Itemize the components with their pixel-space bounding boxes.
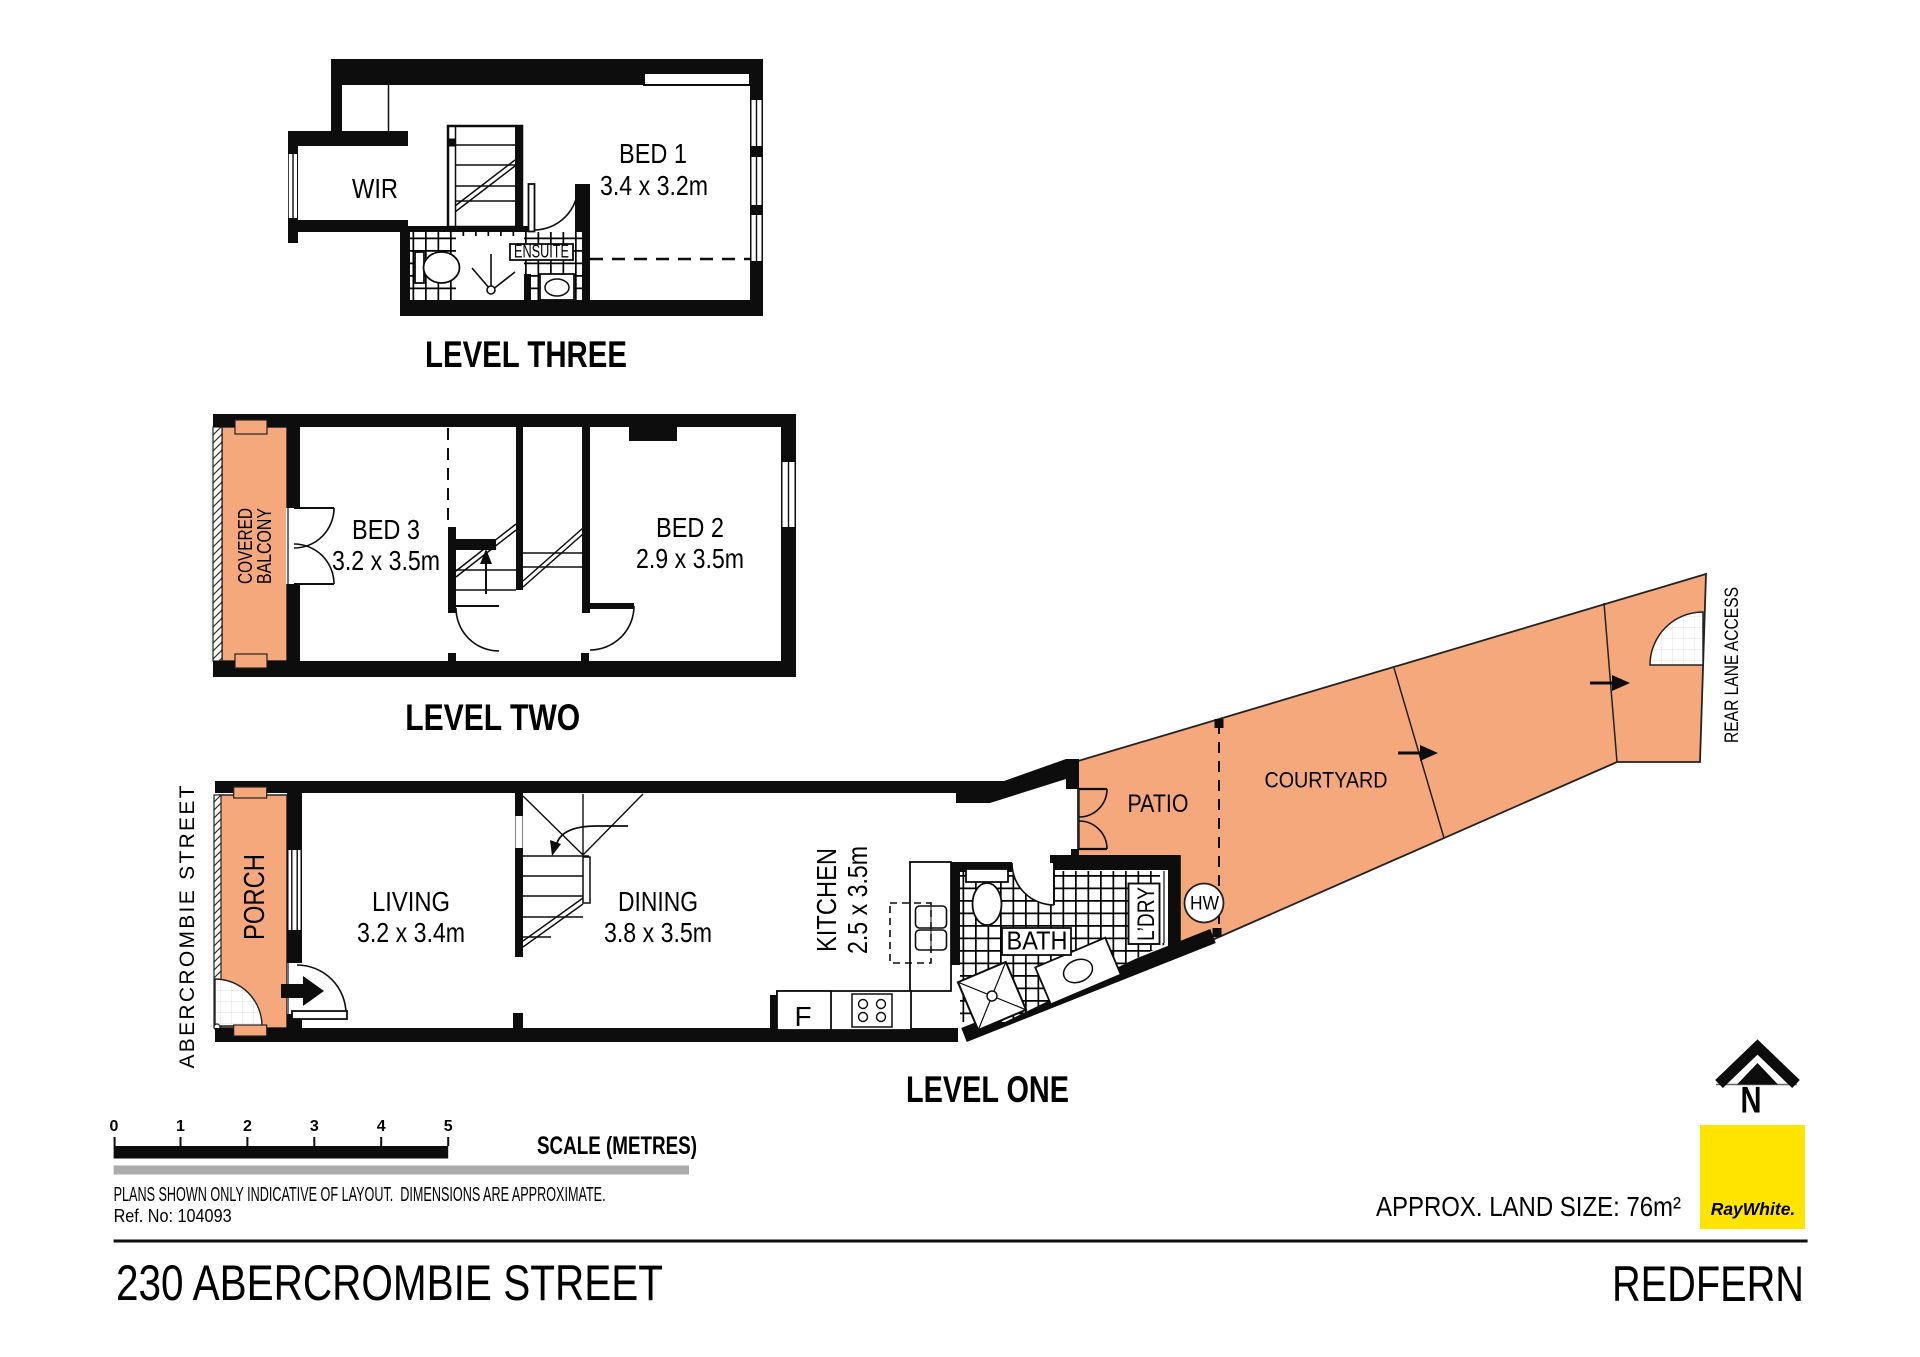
svg-text:PATIO: PATIO <box>1128 790 1189 818</box>
svg-text:RayWhite.: RayWhite. <box>1711 1199 1796 1219</box>
svg-text:230 ABERCROMBIE STREET: 230 ABERCROMBIE STREET <box>116 1255 663 1311</box>
svg-text:DINING: DINING <box>618 886 698 917</box>
svg-text:LEVEL ONE: LEVEL ONE <box>906 1069 1069 1110</box>
svg-text:BED 3: BED 3 <box>352 514 420 545</box>
svg-text:Ref. No: 104093: Ref. No: 104093 <box>114 1206 232 1226</box>
svg-text:5: 5 <box>444 1118 453 1135</box>
svg-text:BED 2: BED 2 <box>656 512 724 543</box>
svg-text:F: F <box>794 1001 811 1032</box>
svg-text:BATH: BATH <box>1007 926 1068 956</box>
svg-text:4: 4 <box>377 1118 386 1135</box>
svg-text:APPROX. LAND SIZE: 76m²: APPROX. LAND SIZE: 76m² <box>1376 1191 1681 1222</box>
svg-text:REDFERN: REDFERN <box>1612 1256 1804 1312</box>
svg-text:2.5 x 3.5m: 2.5 x 3.5m <box>842 846 873 954</box>
svg-text:2.9 x 3.5m: 2.9 x 3.5m <box>636 543 744 574</box>
svg-text:3.8 x 3.5m: 3.8 x 3.5m <box>604 917 712 948</box>
svg-text:LEVEL TWO: LEVEL TWO <box>405 697 580 738</box>
svg-text:3.2 x 3.4m: 3.2 x 3.4m <box>357 917 465 948</box>
svg-text:KITCHEN: KITCHEN <box>811 848 842 952</box>
svg-text:ENSUITE: ENSUITE <box>514 242 569 262</box>
svg-text:3.2 x 3.5m: 3.2 x 3.5m <box>332 545 440 576</box>
svg-text:WIR: WIR <box>352 173 398 204</box>
svg-text:3: 3 <box>310 1118 319 1135</box>
svg-text:PLANS SHOWN ONLY INDICATIVE OF: PLANS SHOWN ONLY INDICATIVE OF LAYOUT. D… <box>114 1184 606 1206</box>
svg-text:L’DRY: L’DRY <box>1133 887 1160 941</box>
svg-text:HW: HW <box>1190 894 1219 915</box>
svg-text:LIVING: LIVING <box>372 886 450 917</box>
svg-text:1: 1 <box>176 1118 185 1135</box>
svg-text:0: 0 <box>110 1118 119 1135</box>
svg-text:BALCONY: BALCONY <box>253 508 276 584</box>
svg-text:ABERCROMBIE STREET: ABERCROMBIE STREET <box>176 785 199 1068</box>
svg-text:PORCH: PORCH <box>239 854 271 940</box>
svg-text:BED 1: BED 1 <box>619 138 687 169</box>
svg-text:SCALE (METRES): SCALE (METRES) <box>537 1132 697 1160</box>
svg-text:REAR LANE ACCESS: REAR LANE ACCESS <box>1722 587 1743 743</box>
svg-text:N: N <box>1741 1080 1762 1121</box>
svg-text:3.4 x 3.2m: 3.4 x 3.2m <box>600 170 708 201</box>
svg-text:LEVEL THREE: LEVEL THREE <box>425 334 627 375</box>
svg-text:2: 2 <box>243 1118 252 1135</box>
svg-text:COURTYARD: COURTYARD <box>1265 768 1388 793</box>
